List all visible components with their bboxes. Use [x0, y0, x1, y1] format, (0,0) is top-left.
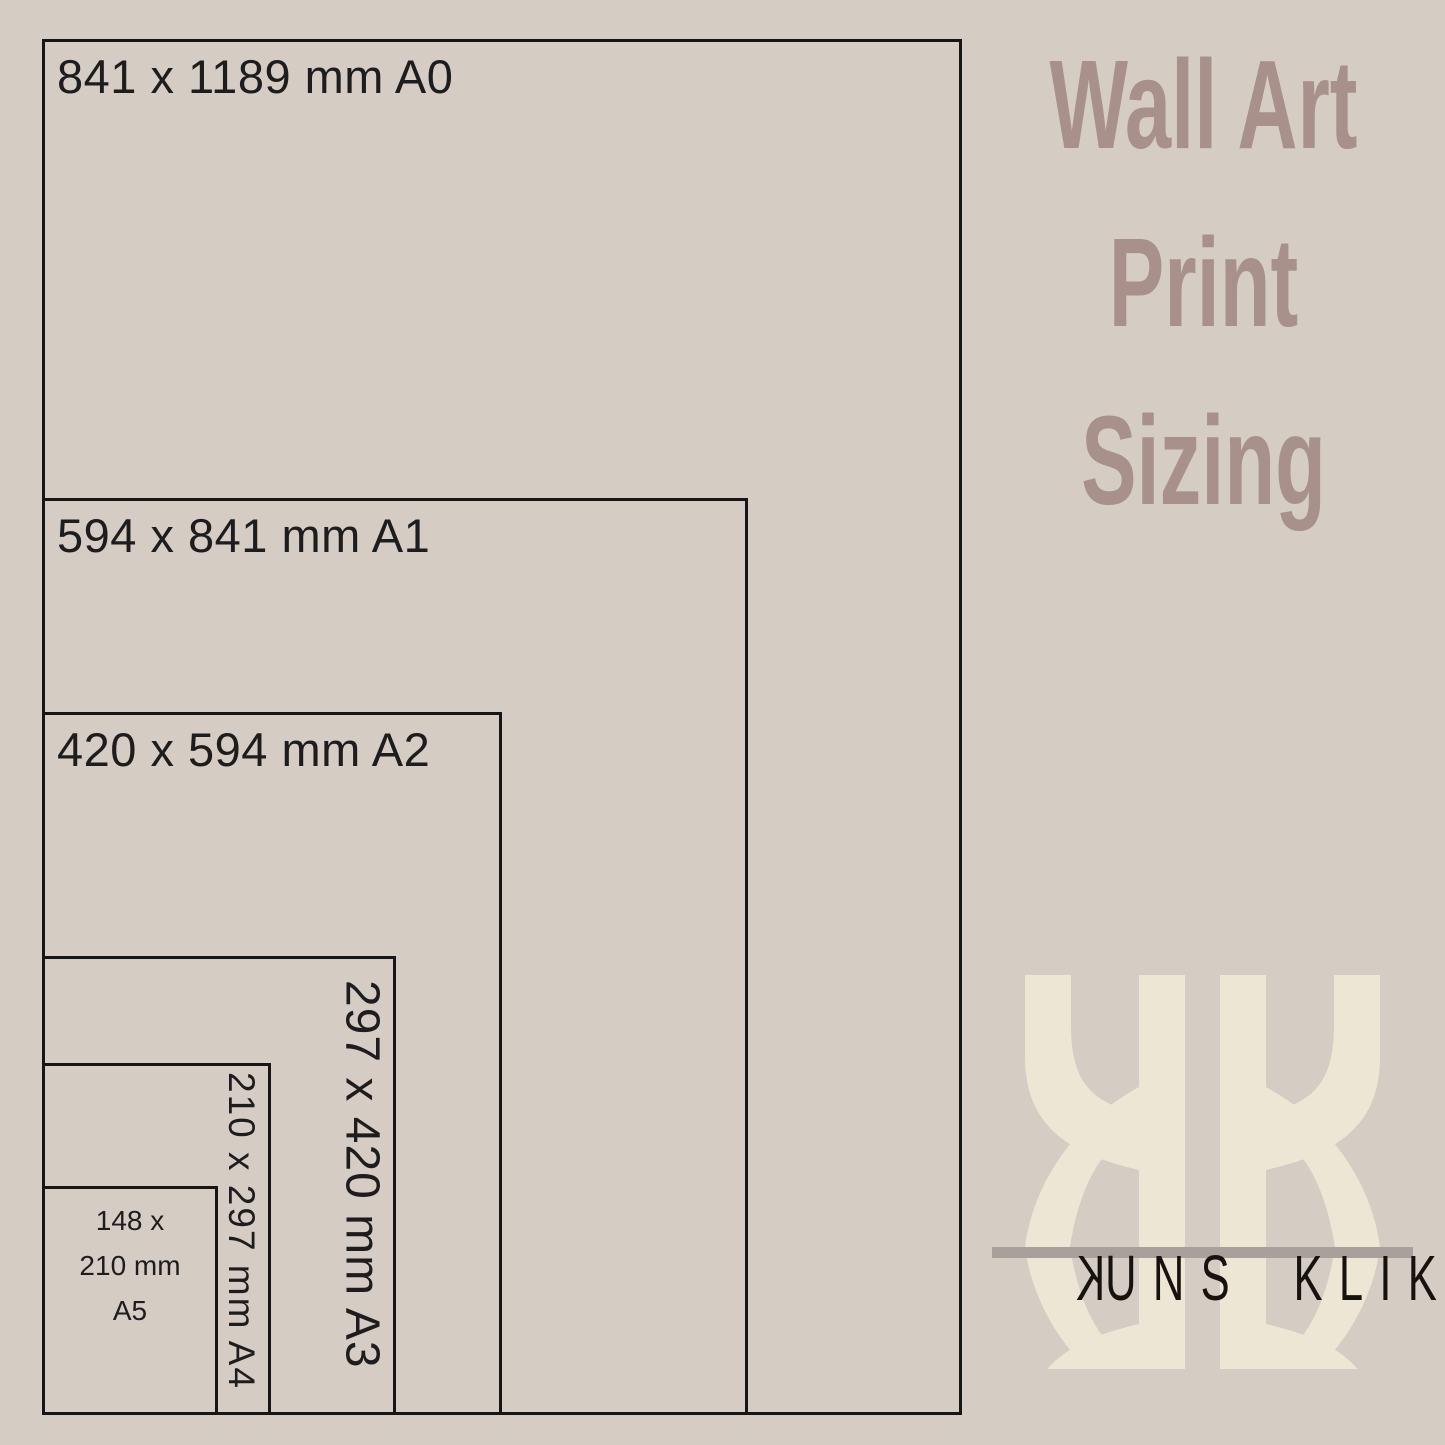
page-title: Wall Art Print Sizing [962, 16, 1445, 550]
size-label-a5-line2: 210 mm [46, 1243, 214, 1288]
title-line-3: Sizing [1044, 372, 1363, 550]
size-label-a5-line3: A5 [46, 1288, 214, 1333]
size-label-a4: 210 x 297 mm A4 [221, 1072, 260, 1390]
size-label-a0: 841 x 1189 mm A0 [57, 49, 453, 104]
wordmark-rest: UNS KLIK [1105, 1242, 1445, 1314]
title-line-1: Wall Art [1044, 16, 1363, 194]
monogram-k-icon [1220, 975, 1380, 1247]
wordmark-mirrored-k: K [1060, 1254, 1105, 1302]
size-label-a3: 297 x 420 mm A3 [336, 980, 386, 1369]
logo-wordmark: KUNS KLIK [1060, 1254, 1348, 1302]
size-label-a5-line1: 148 x [46, 1198, 214, 1243]
title-line-2: Print [1044, 194, 1363, 372]
kuns-klik-logo: KUNS KLIK [992, 975, 1416, 1387]
size-label-a2: 420 x 594 mm A2 [57, 722, 430, 777]
size-label-a1: 594 x 841 mm A1 [57, 508, 430, 563]
poster-canvas: { "page": { "background_color": "#d5ccc3… [0, 0, 1445, 1445]
monogram-k-mirrored-icon [1025, 975, 1185, 1247]
size-label-a5: 148 x 210 mm A5 [46, 1198, 214, 1333]
